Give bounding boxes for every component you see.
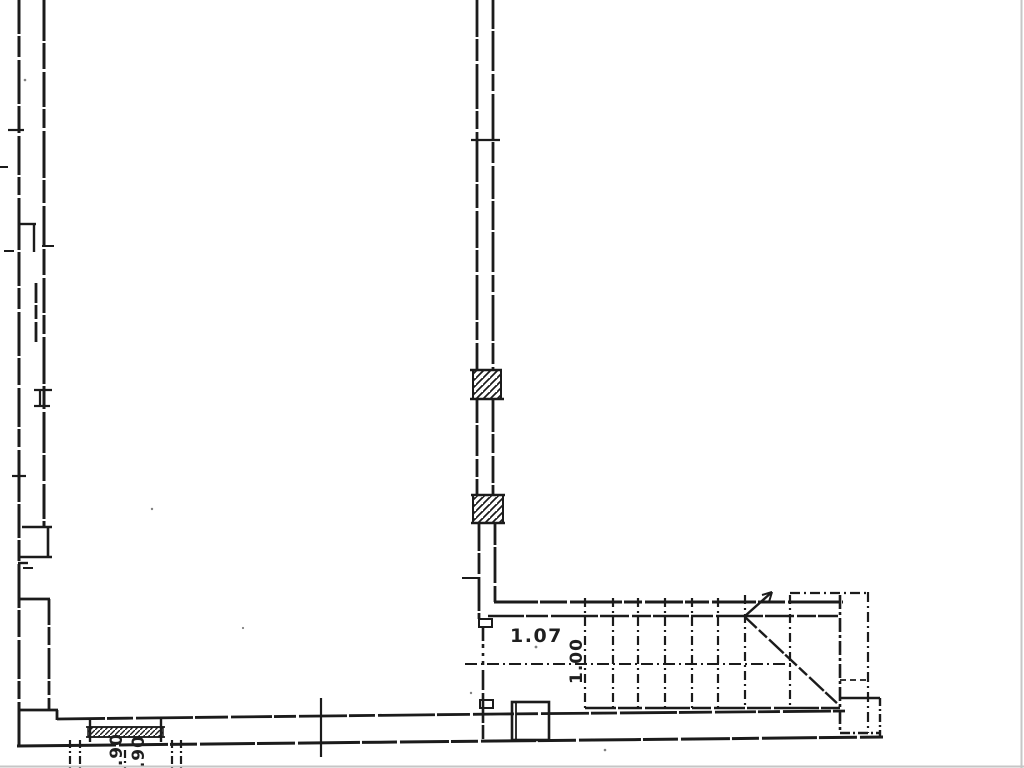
scan-edges [0,0,1024,768]
bottom-dim-label-left: 0.90 [107,733,127,768]
left-wall [0,0,58,745]
bottom-dim-label-right: 0.90 [129,735,149,768]
speckle [470,692,472,694]
speckle [151,508,153,510]
wall-hatch-block-1 [473,370,501,399]
wall-hatch-block-2 [473,495,503,523]
door-leaf-box [512,702,549,740]
bottom-wall-top-line [57,711,845,719]
stair-direction-arrow-shaft [745,592,772,616]
floorplan-scan: 1.07 1.00 0.90 0.90 [0,0,1024,768]
speckle [242,627,244,629]
speckle [604,749,607,752]
speckle [24,79,27,82]
door-jamb-upper [479,619,492,627]
floorplan-canvas: 1.07 1.00 0.90 0.90 [0,0,1024,768]
central-wall [462,0,505,740]
stair-winder-diagonal [745,617,840,706]
scan-speckles [24,79,607,752]
stair-width-label: 1.00 [567,638,587,684]
room-width-label: 1.07 [510,625,563,647]
staircase [465,592,880,740]
dimension-labels: 1.07 1.00 0.90 0.90 [107,625,587,768]
